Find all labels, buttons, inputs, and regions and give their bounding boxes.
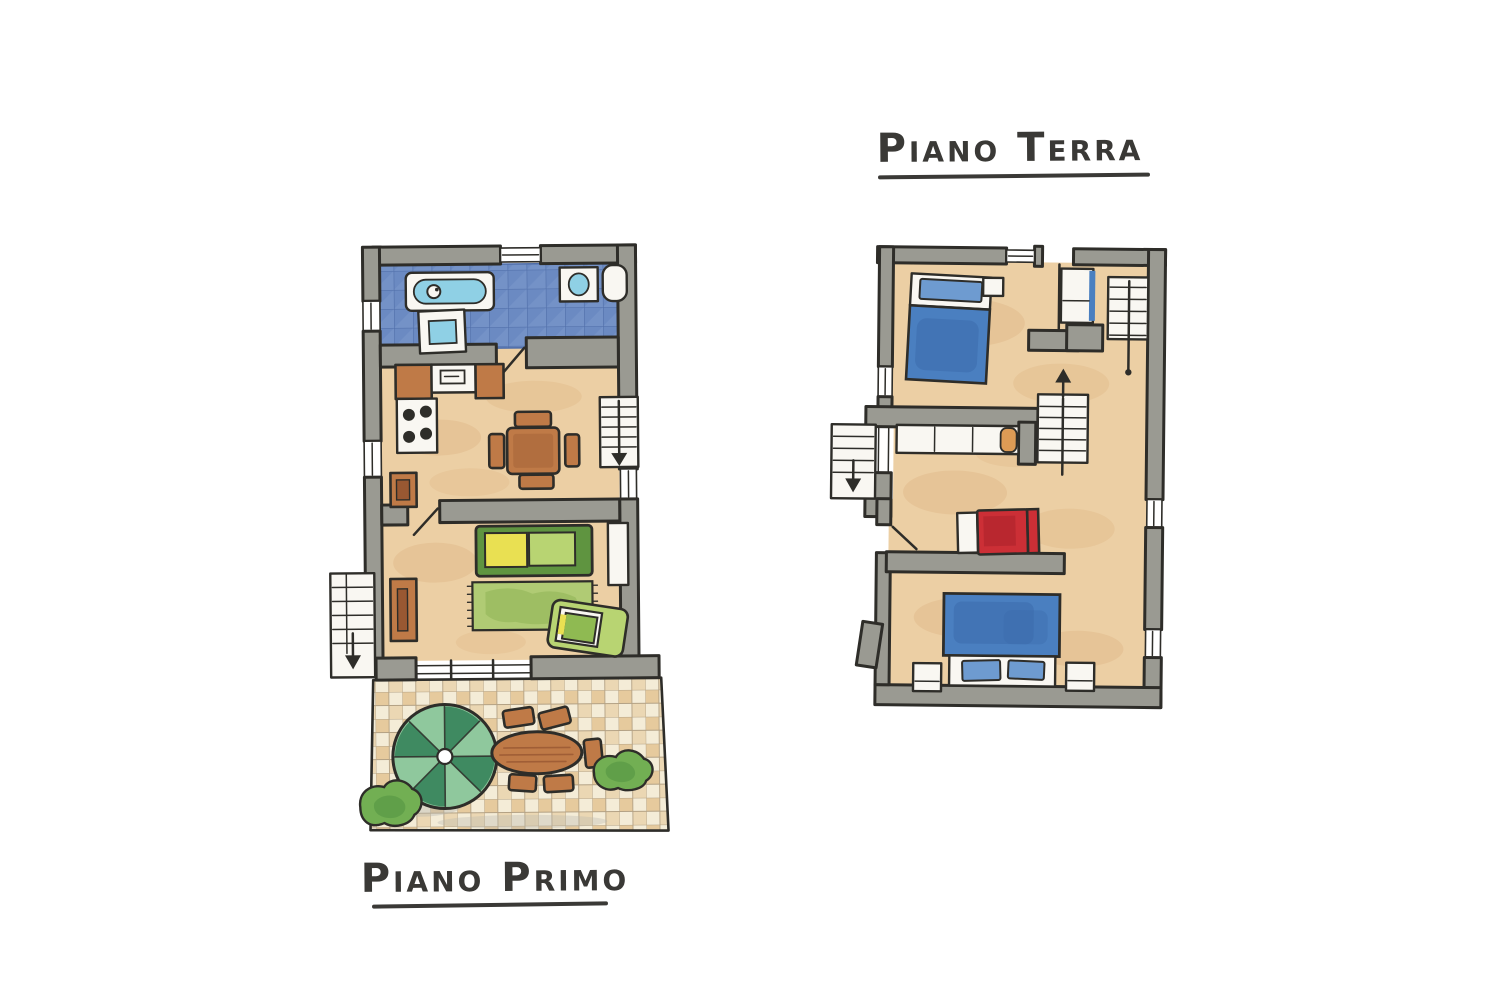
bedside-table [983,278,1003,296]
toilet [603,265,627,301]
bathroom-sink [560,267,598,301]
piano-terra-plan [815,228,1190,773]
double-bed-north [906,273,992,383]
entry-door [1061,269,1096,323]
stove [397,399,437,453]
interior-staircase-down [600,397,639,467]
double-bed-south [943,593,1060,686]
bathtub [406,272,494,311]
armchair [547,599,629,658]
wall-console [608,523,629,585]
sofa [476,525,592,576]
floor-plan-page: Piano Terra Piano Primo [0,0,1500,1000]
nightstand [913,663,941,691]
exterior-staircase-west [831,424,876,498]
single-bed-red [957,509,1039,555]
french-window [416,660,531,679]
piano-primo-title: Piano Primo [355,857,635,899]
wardrobe [896,425,1018,454]
piano-terra-title-underline [878,173,1150,179]
washing-machine [418,310,466,354]
exterior-staircase-down [330,573,375,677]
nightstand [1066,663,1094,691]
piano-primo-title-underline [372,901,608,908]
sideboard [390,579,417,641]
piano-terra-title: Piano Terra [860,127,1160,169]
kitchen-cabinet [390,473,416,507]
piano-primo-plan [320,232,690,857]
